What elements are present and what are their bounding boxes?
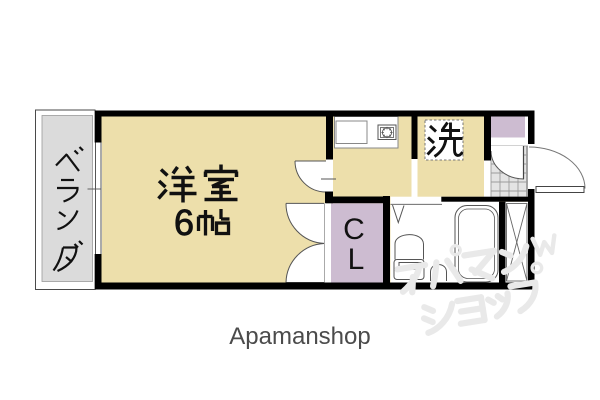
svg-text:C: C — [343, 213, 365, 246]
svg-text:Apamanshop: Apamanshop — [229, 323, 370, 350]
svg-text:L: L — [348, 243, 365, 276]
svg-text:6: 6 — [174, 202, 194, 243]
